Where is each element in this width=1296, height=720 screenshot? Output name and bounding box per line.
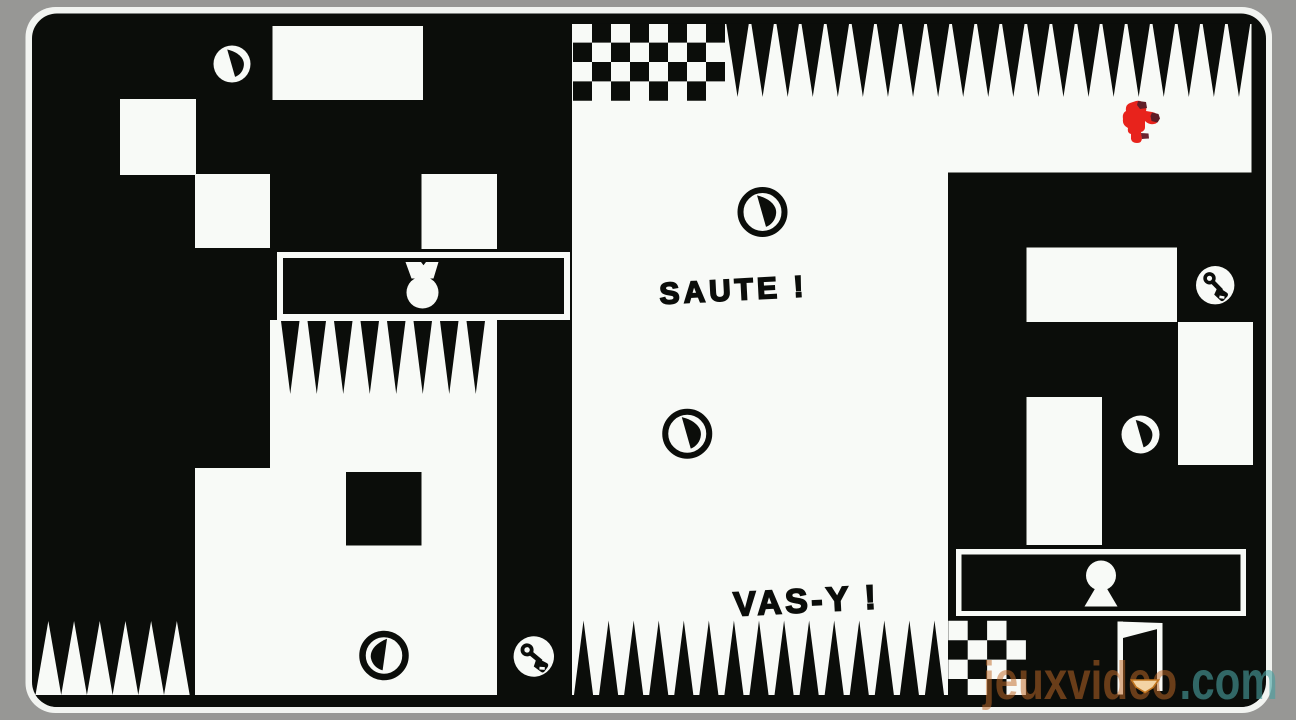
svg-text:.com: .com	[1180, 651, 1278, 711]
svg-text:VAS-Y !: VAS-Y !	[732, 578, 880, 624]
